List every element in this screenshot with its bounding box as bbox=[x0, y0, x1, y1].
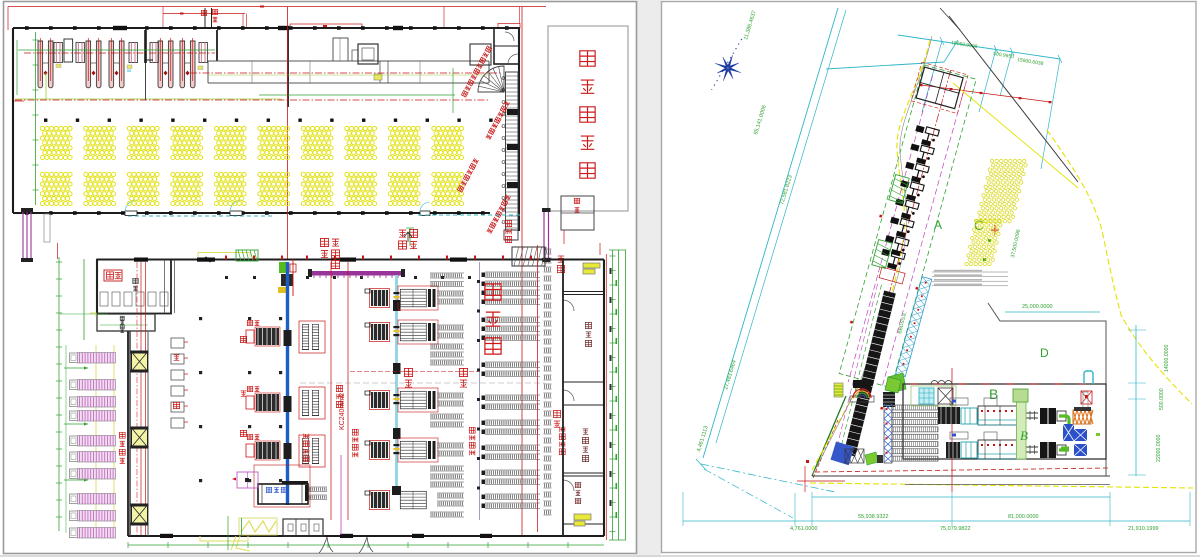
svg-text:D: D bbox=[1040, 346, 1049, 360]
svg-text:14000.0000: 14000.0000 bbox=[1164, 344, 1170, 372]
svg-text:KC240mm2: KC240mm2 bbox=[339, 393, 346, 430]
svg-text:22000.0000: 22000.0000 bbox=[1156, 434, 1162, 462]
svg-text:4,761.0000: 4,761.0000 bbox=[790, 526, 818, 532]
svg-text:B: B bbox=[1020, 428, 1028, 443]
svg-text:25,000.0000: 25,000.0000 bbox=[1022, 304, 1053, 310]
svg-text:21,910.1999: 21,910.1999 bbox=[1128, 526, 1159, 532]
svg-text:75,079.9822: 75,079.9822 bbox=[940, 526, 971, 532]
svg-text:55,938.9322: 55,938.9322 bbox=[858, 514, 889, 520]
svg-text:A: A bbox=[934, 218, 942, 232]
svg-text:500.0000: 500.0000 bbox=[1159, 388, 1165, 410]
svg-text:81,000.0000: 81,000.0000 bbox=[1008, 514, 1039, 520]
